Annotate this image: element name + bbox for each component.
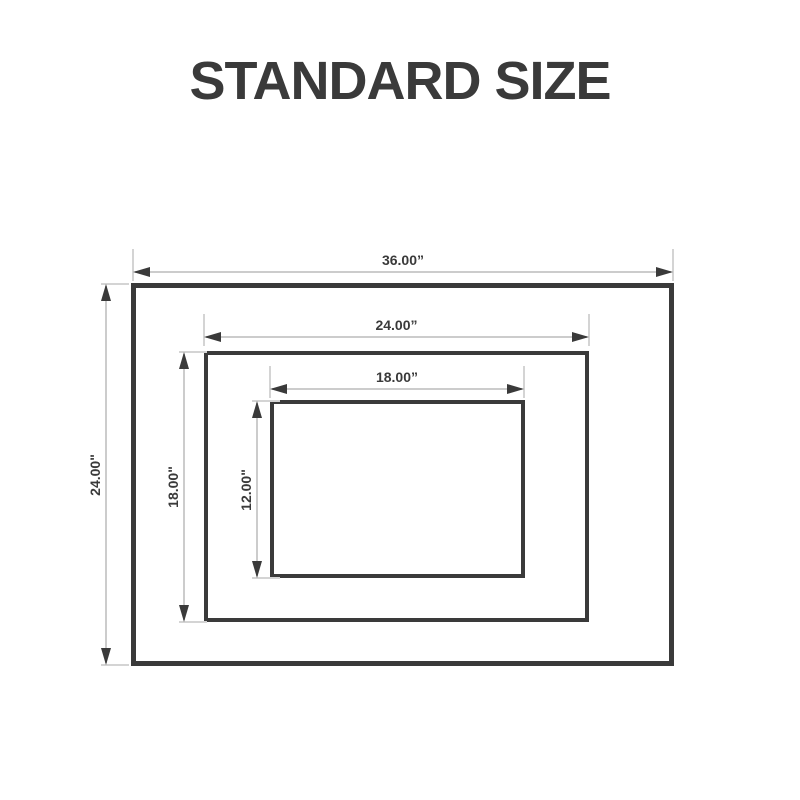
outer-width-label: 36.00”: [133, 252, 673, 268]
outer-height-label: 24.00": [87, 454, 103, 496]
dimension-line: [272, 388, 522, 390]
inner-rectangle: [270, 400, 525, 578]
arrow-up-icon: [179, 352, 189, 369]
middle-height-label: 18.00": [165, 466, 181, 508]
dimension-line: [183, 354, 185, 620]
arrow-down-icon: [252, 561, 262, 578]
dimension-line: [135, 271, 671, 273]
dimension-line: [256, 403, 258, 576]
inner-height-label: 12.00": [238, 469, 254, 511]
arrow-left-icon: [270, 384, 287, 394]
page-title: STANDARD SIZE: [0, 50, 800, 112]
arrow-left-icon: [204, 332, 221, 342]
arrow-up-icon: [252, 401, 262, 418]
diagram-canvas: STANDARD SIZE 36.00” 24.00” 18.00”: [0, 0, 800, 800]
arrow-right-icon: [572, 332, 589, 342]
inner-width-label: 18.00”: [270, 369, 524, 385]
dimension-line: [105, 286, 107, 663]
arrow-down-icon: [101, 648, 111, 665]
arrow-up-icon: [101, 284, 111, 301]
middle-width-label: 24.00”: [204, 317, 589, 333]
dimension-line: [206, 336, 587, 338]
arrow-right-icon: [507, 384, 524, 394]
arrow-left-icon: [133, 267, 150, 277]
arrow-right-icon: [656, 267, 673, 277]
arrow-down-icon: [179, 605, 189, 622]
